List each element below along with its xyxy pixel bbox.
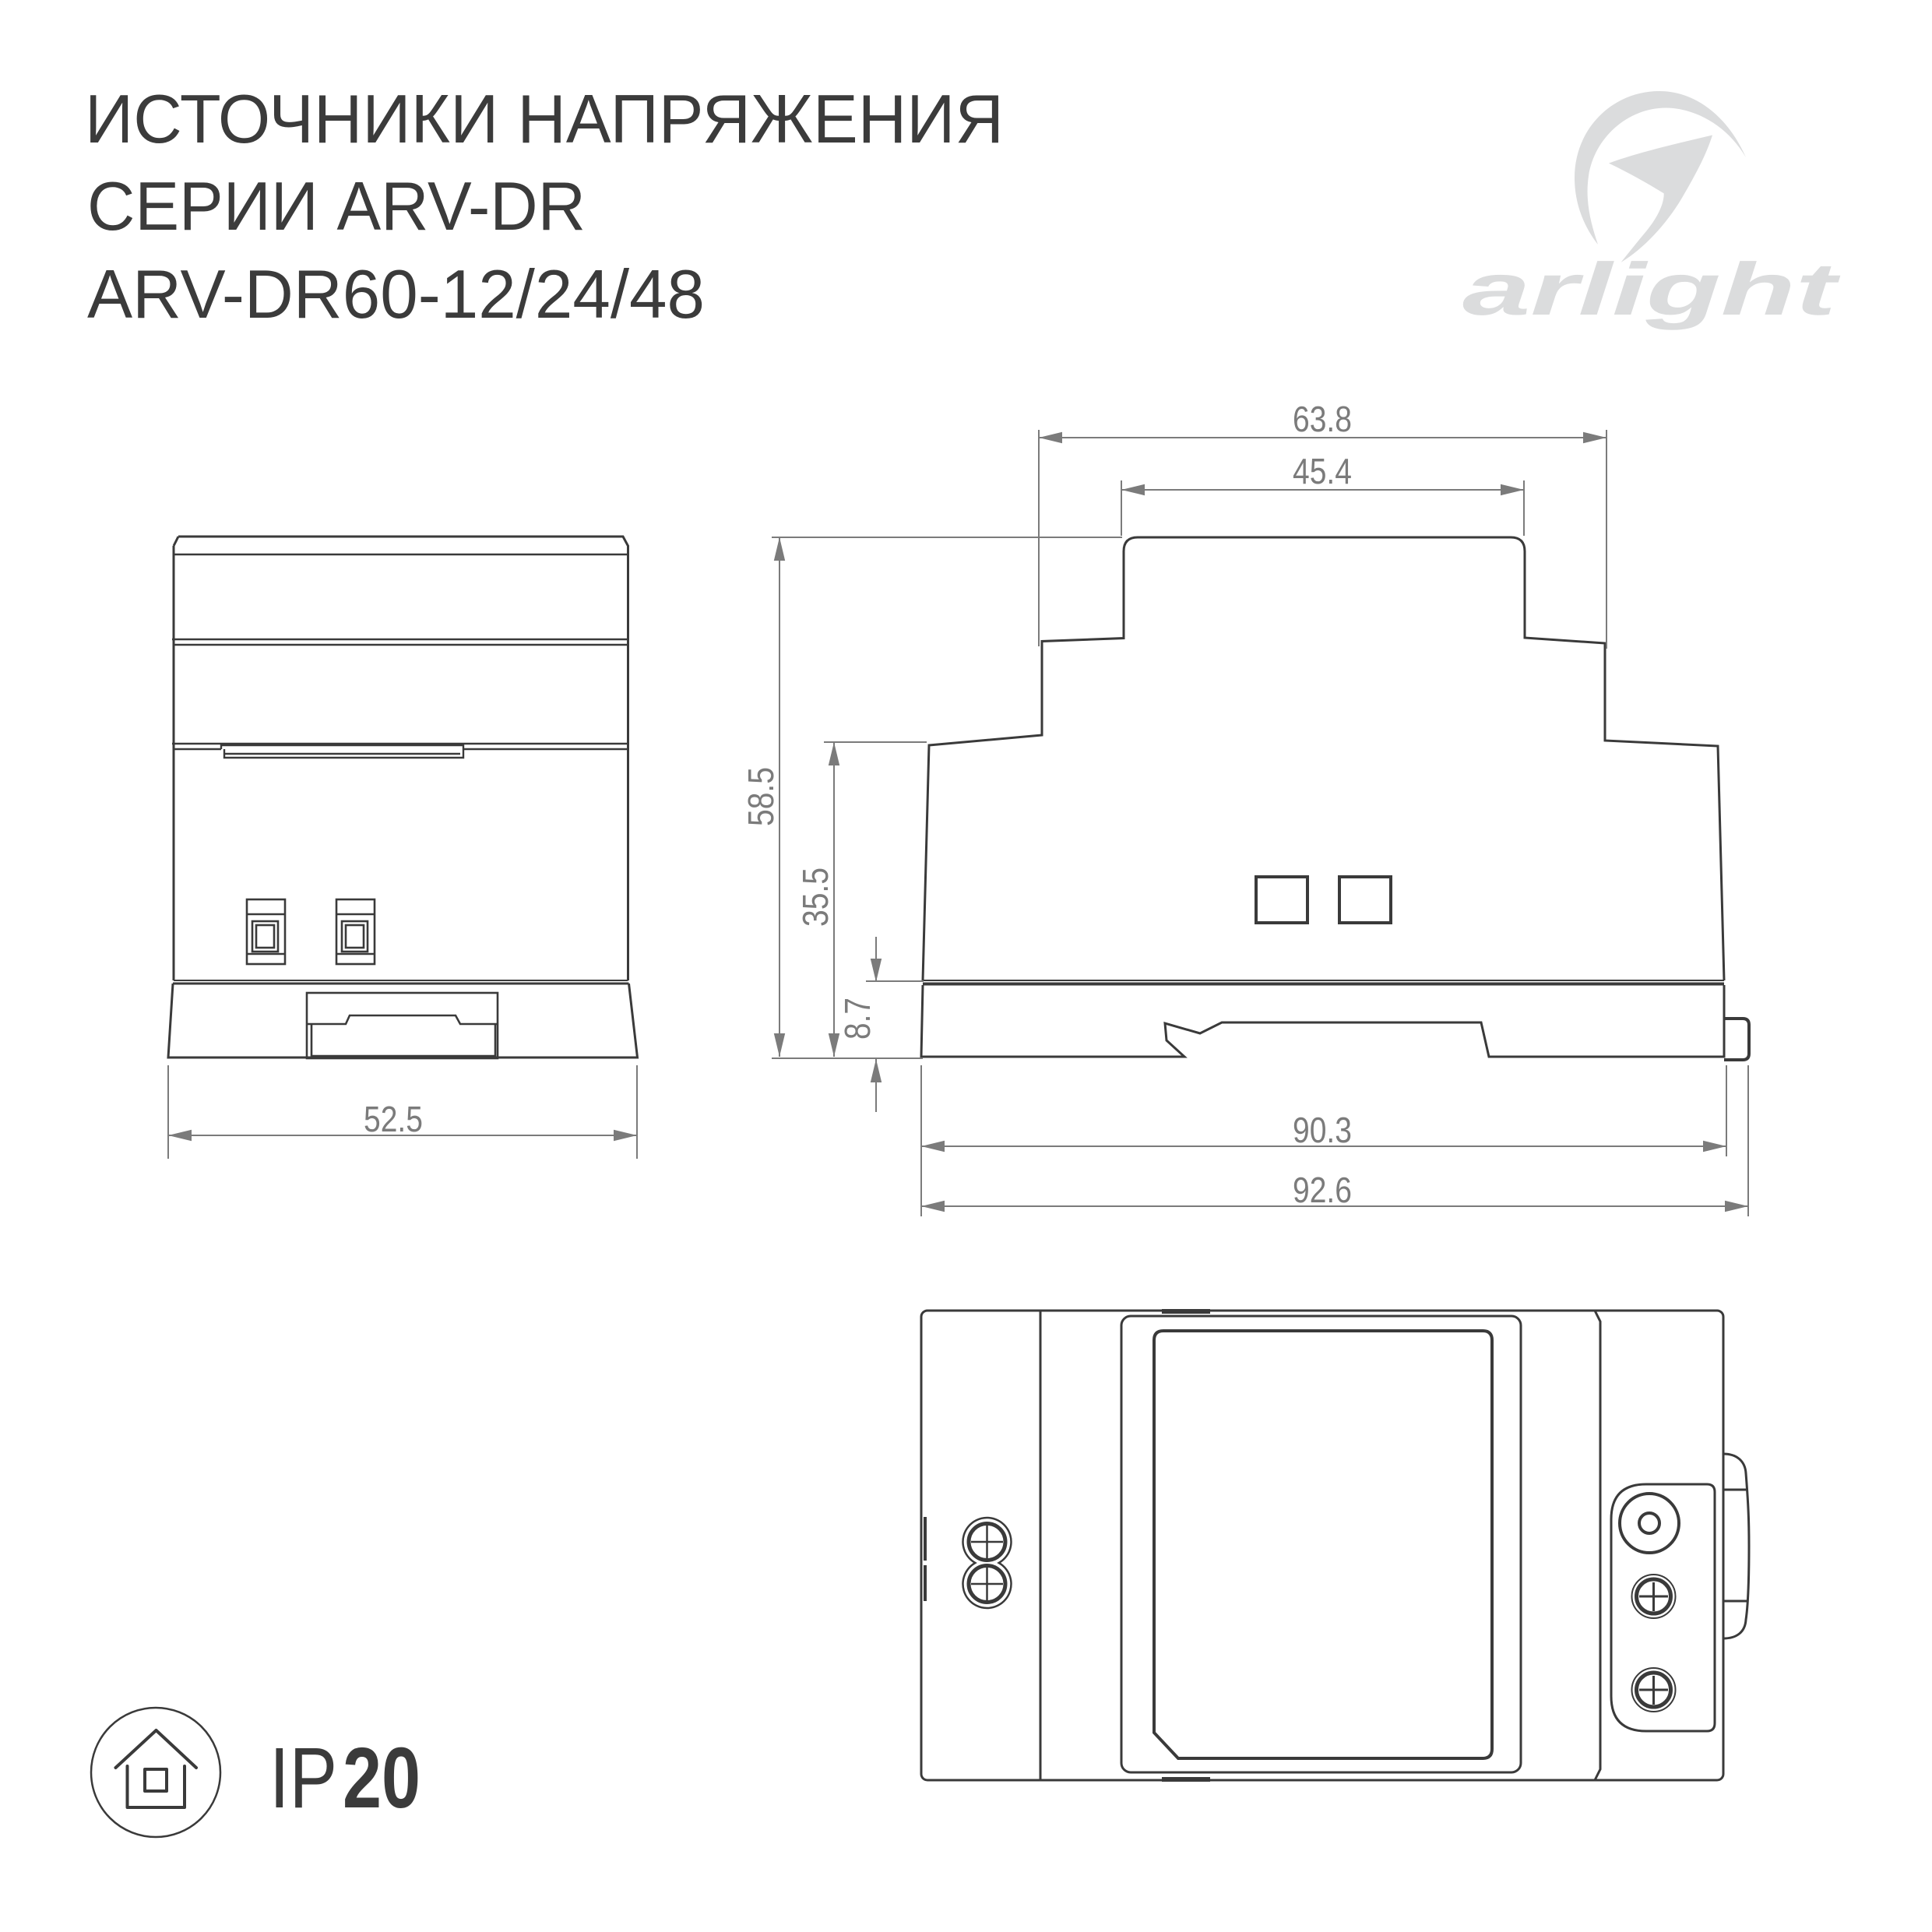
svg-text:IP: IP — [269, 1730, 337, 1826]
svg-text:90.3: 90.3 — [1293, 1110, 1352, 1150]
svg-text:92.6: 92.6 — [1293, 1170, 1352, 1210]
svg-text:52.5: 52.5 — [364, 1099, 423, 1139]
svg-text:ARV-DR60-12/24/48: ARV-DR60-12/24/48 — [87, 255, 705, 333]
svg-text:ИСТОЧНИКИ НАПРЯЖЕНИЯ: ИСТОЧНИКИ НАПРЯЖЕНИЯ — [85, 80, 1004, 157]
svg-text:63.8: 63.8 — [1293, 399, 1352, 439]
svg-text:45.4: 45.4 — [1293, 451, 1352, 491]
svg-text:58.5: 58.5 — [741, 767, 781, 826]
svg-text:35.5: 35.5 — [795, 867, 836, 927]
svg-text:arlight: arlight — [1462, 248, 1841, 331]
svg-text:20: 20 — [343, 1730, 421, 1826]
svg-text:8.7: 8.7 — [837, 998, 878, 1040]
svg-text:СЕРИИ ARV-DR: СЕРИИ ARV-DR — [87, 167, 586, 245]
